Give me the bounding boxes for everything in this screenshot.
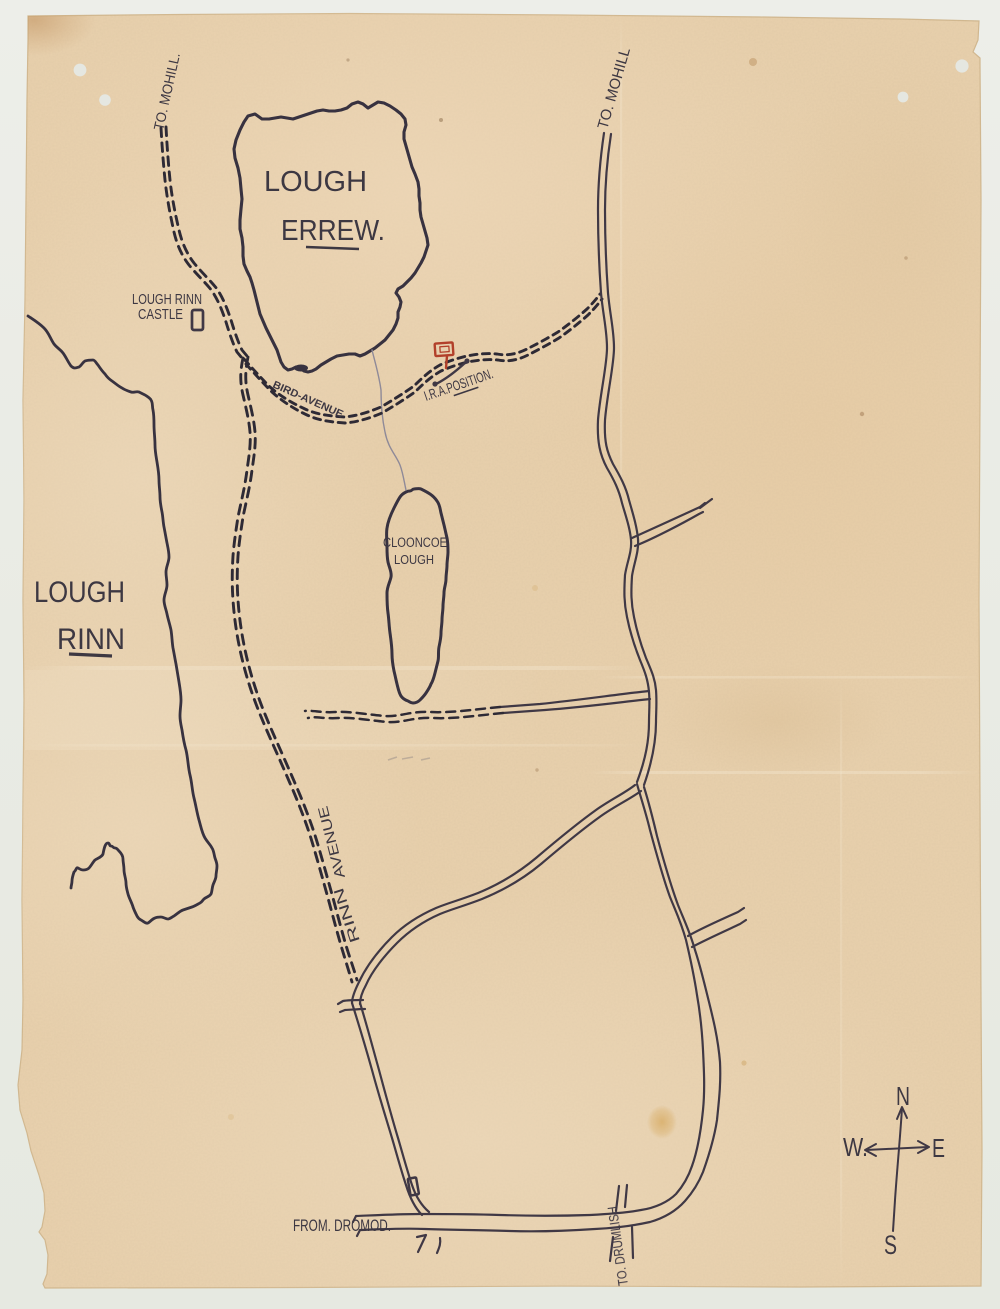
svg-text:N: N — [896, 1081, 910, 1111]
svg-text:RINN: RINN — [57, 623, 125, 656]
svg-text:ERREW.: ERREW. — [281, 215, 385, 247]
svg-text:LOUGH: LOUGH — [264, 166, 367, 198]
svg-text:S: S — [884, 1230, 897, 1260]
svg-text:W.: W. — [843, 1132, 868, 1162]
svg-text:CLOONCOE: CLOONCOE — [383, 535, 447, 550]
svg-text:LOUGH: LOUGH — [394, 552, 434, 567]
svg-text:E: E — [932, 1133, 945, 1163]
svg-text:CASTLE: CASTLE — [138, 307, 183, 323]
svg-text:LOUGH: LOUGH — [34, 576, 125, 609]
svg-text:FROM. DROMOD.: FROM. DROMOD. — [293, 1217, 391, 1235]
svg-text:LOUGH RINN: LOUGH RINN — [132, 292, 202, 308]
